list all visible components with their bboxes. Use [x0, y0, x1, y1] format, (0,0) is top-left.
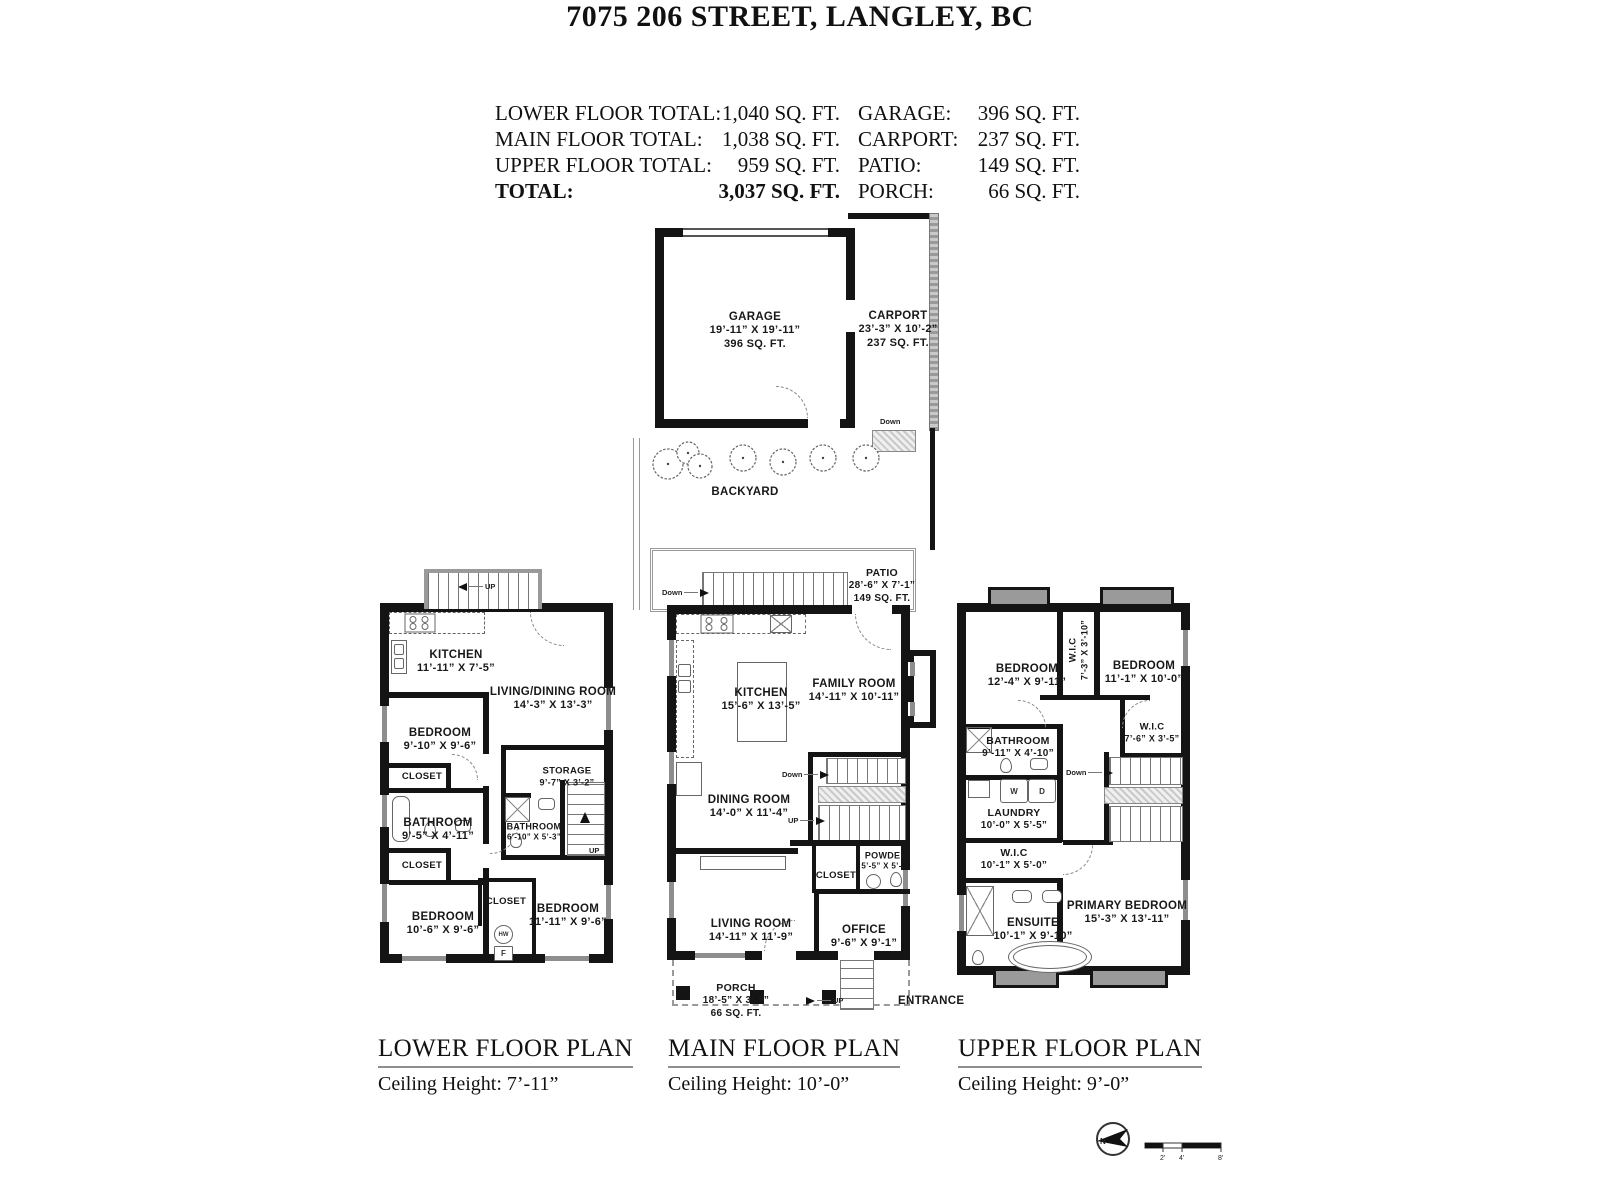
summary-value: 1,040 SQ. FT.	[722, 100, 840, 126]
room-label-bathroom: BATHROOM9’-5” X 4’-11”	[402, 816, 474, 844]
patio-label: PATIO 28’-6” X 7’-1” 149 SQ. FT.	[849, 567, 915, 605]
window	[908, 662, 917, 676]
scale-bar: 2’ 4’ 8’	[1144, 1138, 1234, 1164]
room-name: CLOSET	[486, 896, 526, 908]
kitchen-sink-basin	[394, 658, 404, 669]
arrow-right-icon	[700, 589, 709, 597]
wall	[856, 846, 860, 893]
room-label-kitchen: KITCHEN15’-6” X 13’-5”	[721, 686, 800, 714]
upper-stairs-down	[1109, 757, 1183, 785]
room-name: W.I.C	[1067, 620, 1079, 680]
entrance-text: ENTRANCE	[898, 994, 964, 1008]
dryer-text: D	[1039, 787, 1045, 796]
room-dims: 9’-11” X 4’-10”	[982, 748, 1054, 761]
main-up-label: UP	[788, 816, 825, 825]
closet-label: CLOSET	[486, 896, 526, 908]
powder-sink	[866, 874, 881, 889]
window	[667, 882, 676, 918]
room-name: FAMILY ROOM	[809, 677, 900, 691]
room-label-bathroom: BATHROOM6’-10” X 5’-3”	[507, 821, 562, 842]
window-bay	[1090, 971, 1168, 988]
summary-value: 1,038 SQ. FT.	[722, 126, 840, 152]
main-floor-footer: MAIN FLOOR PLAN Ceiling Height: 10’-0”	[668, 1035, 900, 1096]
upper-down-label: Down	[1066, 768, 1113, 777]
up-text: UP	[589, 846, 599, 855]
sink-icon	[538, 798, 555, 810]
room-name: CARPORT	[858, 309, 937, 323]
room-name: ENSUITE	[993, 916, 1072, 930]
arrow-right-icon	[1104, 769, 1113, 777]
main-stairs-up	[818, 805, 906, 842]
garage-door-opening	[683, 228, 828, 237]
furnace-text: F	[501, 949, 506, 958]
room-dims: 10’-1” X 5’-0”	[981, 860, 1047, 873]
wall	[1057, 724, 1063, 842]
summary-row: PORCH:66 SQ. FT.	[858, 178, 1080, 204]
lower-floor-title: LOWER FLOOR PLAN	[378, 1035, 633, 1068]
window-bay	[993, 971, 1059, 988]
lower-entry-up-label: UP	[458, 582, 495, 591]
window	[402, 954, 446, 963]
room-label-bathroom: BATHROOM9’-11” X 4’-10”	[982, 735, 1054, 761]
summary-value: 237 SQ. FT.	[978, 126, 1080, 152]
room-name: BATHROOM	[402, 816, 474, 830]
room-dims: 10’-6” X 9’-6”	[407, 924, 480, 938]
window-bay	[1100, 587, 1174, 604]
patio-down-label: Down	[662, 588, 709, 597]
wall	[389, 880, 489, 885]
room-label-dining: DINING ROOM14’-0” X 11’-4”	[708, 793, 791, 821]
sink-icon	[1012, 890, 1032, 903]
kitchen-sink-basin	[678, 664, 691, 677]
hot-water-tank: HW	[494, 925, 513, 944]
page-title: 7075 206 STREET, LANGLEY, BC	[0, 0, 1600, 34]
main-stairs-down	[826, 758, 906, 784]
summary-label: PORCH:	[858, 178, 934, 204]
room-label-powder: POWDER5’-5” X 5’-2”	[861, 850, 910, 871]
room-label-living-dining: LIVING/DINING ROOM14’-3” X 13’-3”	[490, 685, 616, 713]
carport-label: CARPORT 23’-3” X 10’-2” 237 SQ. FT.	[858, 309, 937, 351]
room-dims: 7’-3” X 3’-10”	[1079, 620, 1090, 680]
kitchen-sink-basin	[678, 680, 691, 693]
wall	[389, 763, 451, 768]
sink-icon	[1042, 890, 1062, 903]
room-name: LIVING ROOM	[709, 917, 793, 931]
room-dims: 11’-11” X 9’-6”	[529, 916, 607, 930]
closet-label: CLOSET	[402, 860, 442, 872]
room-name: KITCHEN	[417, 648, 495, 662]
summary-label: TOTAL:	[495, 178, 574, 204]
wall	[966, 838, 1062, 843]
down-text: Down	[782, 770, 802, 779]
summary-row: MAIN FLOOR TOTAL:1,038 SQ. FT.	[495, 126, 840, 152]
room-name: BEDROOM	[529, 902, 607, 916]
room-dims: 19’-11” X 19’-11”	[710, 324, 801, 338]
leader-line	[817, 1000, 831, 1001]
room-dims: 14’-3” X 13’-3”	[490, 699, 616, 713]
leader-line	[800, 820, 814, 821]
room-dims: 14’-11” X 10’-11”	[809, 691, 900, 705]
room-name: BEDROOM	[404, 726, 477, 740]
stair-landing	[818, 786, 906, 803]
porch-post	[676, 986, 690, 1000]
room-label-wic: W.I.C10’-1” X 5’-0”	[981, 847, 1047, 873]
summary-label: CARPORT:	[858, 126, 958, 152]
wall	[389, 788, 489, 793]
room-name: W.I.C	[981, 847, 1047, 860]
main-ceiling-height: Ceiling Height: 10’-0”	[668, 1073, 900, 1096]
backyard-fence	[633, 438, 640, 610]
room-dims: 10’-1” X 9’-10”	[993, 930, 1072, 944]
entrance-label: ENTRANCE	[898, 994, 964, 1008]
window	[901, 870, 910, 906]
window	[380, 884, 389, 922]
summary-value: 396 SQ. FT.	[978, 100, 1080, 126]
room-name: W.I.C	[1125, 721, 1180, 733]
room-name: CLOSET	[816, 870, 856, 882]
outdoor-totals: GARAGE:396 SQ. FT. CARPORT:237 SQ. FT. P…	[858, 100, 1080, 204]
room-label-family: FAMILY ROOM14’-11” X 10’-11”	[809, 677, 900, 705]
patio-door-opening	[852, 605, 892, 614]
summary-label: GARAGE:	[858, 100, 951, 126]
wall	[446, 763, 451, 790]
room-name: BEDROOM	[407, 910, 480, 924]
upper-ceiling-height: Ceiling Height: 9’-0”	[958, 1073, 1202, 1096]
room-label-bedroom: BEDROOM9’-10” X 9’-6”	[404, 726, 477, 754]
closet-label: CLOSET	[402, 771, 442, 783]
room-name: DINING ROOM	[708, 793, 791, 807]
arrow-right-icon	[820, 771, 829, 779]
room-label-porch: PORCH 18’-5” X 3’-9” 66 SQ. FT.	[703, 982, 769, 1020]
window	[908, 702, 917, 716]
entrance-steps	[840, 960, 874, 1010]
arrow-left-icon	[458, 583, 467, 591]
freestanding-tub-inner	[1013, 945, 1087, 969]
window	[545, 954, 589, 963]
room-label-wic: W.I.C7’-6” X 3’-5”	[1125, 721, 1180, 744]
leader-line	[804, 774, 818, 775]
down-text: Down	[880, 417, 900, 426]
arrow-right-icon	[816, 817, 825, 825]
room-name: STORAGE	[540, 765, 595, 777]
main-down-label: Down	[782, 770, 829, 779]
room-label-primary: PRIMARY BEDROOM15’-3” X 13’-11”	[1067, 899, 1187, 927]
room-name: PRIMARY BEDROOM	[1067, 899, 1187, 913]
svg-text:8’: 8’	[1218, 1155, 1224, 1162]
room-dims: 11’-11” X 7’-5”	[417, 662, 495, 676]
toilet-icon	[972, 950, 984, 965]
room-label-bedroom: BEDROOM10’-6” X 9’-6”	[407, 910, 480, 938]
wall	[483, 692, 489, 754]
wall	[814, 893, 819, 951]
toilet-icon	[890, 872, 902, 887]
upper-floor-title: UPPER FLOOR PLAN	[958, 1035, 1202, 1068]
carport-down-label: Down	[880, 417, 900, 426]
room-name: CLOSET	[402, 860, 442, 872]
wall	[816, 889, 910, 894]
wall	[389, 692, 489, 698]
compass-icon: N	[1090, 1116, 1136, 1162]
summary-row: UPPER FLOOR TOTAL:959 SQ. FT.	[495, 152, 840, 178]
room-label-laundry: LAUNDRY10’-0” X 5’-5”	[981, 807, 1047, 833]
room-area: 396 SQ. FT.	[710, 338, 801, 352]
lower-floor-footer: LOWER FLOOR PLAN Ceiling Height: 7’-11”	[378, 1035, 633, 1096]
wall	[790, 840, 910, 846]
leader-line	[684, 592, 698, 593]
backyard-label: BACKYARD	[711, 485, 778, 499]
summary-value: 66 SQ. FT.	[988, 178, 1080, 204]
arrow-right-icon	[806, 997, 815, 1005]
up-text: UP	[485, 582, 495, 591]
carport-wall	[848, 213, 937, 219]
hw-text: HW	[499, 932, 509, 938]
window	[667, 752, 676, 784]
window	[380, 795, 389, 827]
room-name: PORCH	[703, 982, 769, 995]
up-text: UP	[833, 996, 843, 1005]
summary-row: CARPORT:237 SQ. FT.	[858, 126, 1080, 152]
closet-label: CLOSET	[816, 870, 856, 882]
window	[695, 951, 745, 960]
room-name: LAUNDRY	[981, 807, 1047, 820]
stove-icon	[404, 613, 436, 633]
room-name: BEDROOM	[1105, 659, 1184, 673]
summary-value: 149 SQ. FT.	[978, 152, 1080, 178]
wall	[483, 786, 489, 844]
room-name: BATHROOM	[507, 821, 562, 832]
main-floor-title: MAIN FLOOR PLAN	[668, 1035, 900, 1068]
room-area: 237 SQ. FT.	[858, 337, 937, 351]
room-label-kitchen: KITCHEN11’-11” X 7’-5”	[417, 648, 495, 676]
room-dims: 14’-0” X 11’-4”	[708, 807, 791, 821]
wall	[808, 752, 910, 757]
room-label-living: LIVING ROOM14’-11” X 11’-9”	[709, 917, 793, 945]
room-name: KITCHEN	[721, 686, 800, 700]
wall	[501, 745, 604, 750]
window	[380, 706, 389, 742]
room-name: CLOSET	[402, 771, 442, 783]
room-label-ensuite: ENSUITE10’-1” X 9’-10”	[993, 916, 1072, 944]
room-dims: 9’-10” X 9’-6”	[404, 740, 477, 754]
room-area: 149 SQ. FT.	[849, 593, 915, 606]
svg-text:N: N	[1100, 1137, 1106, 1146]
garage-rear-door	[808, 419, 840, 428]
upper-stairs-lower-run	[1109, 806, 1183, 842]
backyard-shrubs	[648, 436, 938, 488]
room-label-office: OFFICE9’-6” X 9’-1”	[831, 923, 897, 951]
window	[957, 895, 966, 931]
kitchen-sink-basin	[394, 644, 404, 655]
svg-text:4’: 4’	[1179, 1155, 1185, 1162]
garage-label: GARAGE 19’-11” X 19’-11” 396 SQ. FT.	[710, 310, 801, 352]
room-name: BATHROOM	[982, 735, 1054, 748]
kitchen-counter	[676, 640, 694, 758]
summary-value: 3,037 SQ. FT.	[718, 178, 840, 204]
lower-ceiling-height: Ceiling Height: 7’-11”	[378, 1073, 633, 1096]
floor-totals: LOWER FLOOR TOTAL:1,040 SQ. FT. MAIN FLO…	[495, 100, 840, 204]
upper-floor-footer: UPPER FLOOR PLAN Ceiling Height: 9’-0”	[958, 1035, 1202, 1096]
svg-text:2’: 2’	[1160, 1155, 1166, 1162]
stove-icon	[700, 614, 734, 634]
room-dims: 11’-1” X 10’-0”	[1105, 673, 1184, 687]
dryer: D	[1028, 779, 1056, 803]
floorplan-sheet: 7075 206 STREET, LANGLEY, BC LOWER FLOOR…	[0, 0, 1600, 1200]
room-dims: 9’-7” X 3’-2”	[540, 777, 595, 788]
garage-side-door	[846, 300, 855, 332]
down-text: Down	[1066, 768, 1086, 777]
wall	[808, 752, 813, 842]
leader-line	[1088, 772, 1102, 773]
wall	[560, 780, 565, 860]
window-bay	[988, 587, 1050, 604]
porch-door-opening	[762, 951, 796, 960]
wall	[1094, 612, 1100, 700]
room-name: PATIO	[849, 567, 915, 580]
room-name: LIVING/DINING ROOM	[490, 685, 616, 699]
wall	[478, 878, 536, 882]
entrance-up-label: UP	[806, 996, 843, 1005]
wall	[446, 848, 451, 883]
laundry-sink	[968, 780, 990, 798]
shower-icon	[505, 797, 530, 822]
summary-label: UPPER FLOOR TOTAL:	[495, 152, 712, 178]
wall	[389, 848, 451, 853]
buffet-counter	[700, 856, 786, 870]
down-text: Down	[662, 588, 682, 597]
summary-label: PATIO:	[858, 152, 921, 178]
room-label-bedroom: BEDROOM11’-11” X 9’-6”	[529, 902, 607, 930]
lower-up-label: UP	[589, 846, 599, 855]
window	[667, 640, 676, 676]
room-label-bedroom: BEDROOM12’-4” X 9’-11”	[988, 662, 1067, 690]
summary-row-total: TOTAL:3,037 SQ. FT.	[495, 178, 840, 204]
room-dims: 18’-5” X 3’-9”	[703, 995, 769, 1008]
room-dims: 9’-6” X 9’-1”	[831, 937, 897, 951]
washer: W	[1000, 779, 1028, 803]
room-dims: 15’-6” X 13’-5”	[721, 700, 800, 714]
room-dims: 23’-3” X 10’-2”	[858, 323, 937, 337]
room-name: BACKYARD	[711, 485, 778, 499]
wall	[1100, 695, 1150, 700]
kitchen-sink-icon	[770, 615, 792, 633]
room-dims: 12’-4” X 9’-11”	[988, 676, 1067, 690]
arrow-up-icon	[580, 812, 590, 823]
room-name: OFFICE	[831, 923, 897, 937]
entrance-opening	[838, 951, 874, 960]
room-name: GARAGE	[710, 310, 801, 324]
room-label-storage: STORAGE9’-7” X 3’-2”	[540, 765, 595, 788]
leader-line	[469, 586, 483, 587]
room-dims: 7’-6” X 3’-5”	[1125, 733, 1180, 744]
room-dims: 28’-6” X 7’-1”	[849, 580, 915, 593]
room-name: POWDER	[861, 850, 910, 861]
wall	[966, 878, 1062, 883]
room-name: BEDROOM	[988, 662, 1067, 676]
shower-icon	[966, 886, 994, 936]
summary-label: LOWER FLOOR TOTAL:	[495, 100, 721, 126]
stair-landing	[1104, 787, 1183, 804]
washer-text: W	[1010, 787, 1018, 796]
wall	[1040, 695, 1100, 700]
room-area: 66 SQ. FT.	[703, 1008, 769, 1021]
area-summary: LOWER FLOOR TOTAL:1,040 SQ. FT. MAIN FLO…	[495, 100, 1080, 204]
summary-label: MAIN FLOOR TOTAL:	[495, 126, 703, 152]
room-label-wic: W.I.C7’-3” X 3’-10”	[1067, 620, 1090, 680]
room-dims: 10’-0” X 5’-5”	[981, 820, 1047, 833]
room-dims: 5’-5” X 5’-2”	[861, 862, 910, 872]
room-dims: 6’-10” X 5’-3”	[507, 833, 562, 843]
summary-row: PATIO:149 SQ. FT.	[858, 152, 1080, 178]
room-label-bedroom: BEDROOM11’-1” X 10’-0”	[1105, 659, 1184, 687]
wall	[676, 848, 798, 854]
furnace: F	[494, 946, 513, 961]
summary-value: 959 SQ. FT.	[738, 152, 840, 178]
fridge	[676, 762, 702, 796]
room-dims: 15’-3” X 13’-11”	[1067, 913, 1187, 927]
room-dims: 14’-11” X 11’-9”	[709, 931, 793, 945]
room-dims: 9’-5” X 4’-11”	[402, 830, 474, 844]
summary-row: LOWER FLOOR TOTAL:1,040 SQ. FT.	[495, 100, 840, 126]
summary-row: GARAGE:396 SQ. FT.	[858, 100, 1080, 126]
